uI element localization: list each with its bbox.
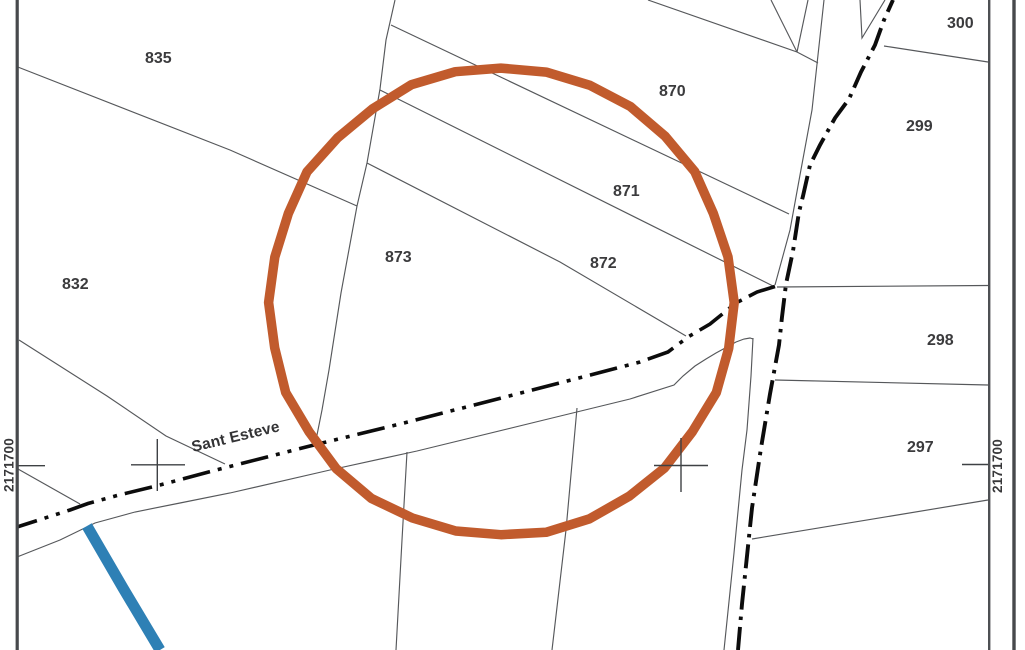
- svg-text:300: 300: [947, 15, 974, 32]
- svg-text:298: 298: [927, 332, 954, 349]
- svg-text:2171700: 2171700: [990, 439, 1005, 493]
- svg-text:2171700: 2171700: [2, 438, 17, 492]
- svg-text:299: 299: [906, 118, 933, 135]
- svg-text:297: 297: [907, 439, 934, 456]
- svg-text:835: 835: [145, 50, 172, 67]
- svg-text:871: 871: [613, 183, 640, 200]
- svg-text:832: 832: [62, 276, 89, 293]
- svg-text:870: 870: [659, 83, 686, 100]
- svg-text:873: 873: [385, 249, 412, 266]
- svg-text:872: 872: [590, 255, 617, 272]
